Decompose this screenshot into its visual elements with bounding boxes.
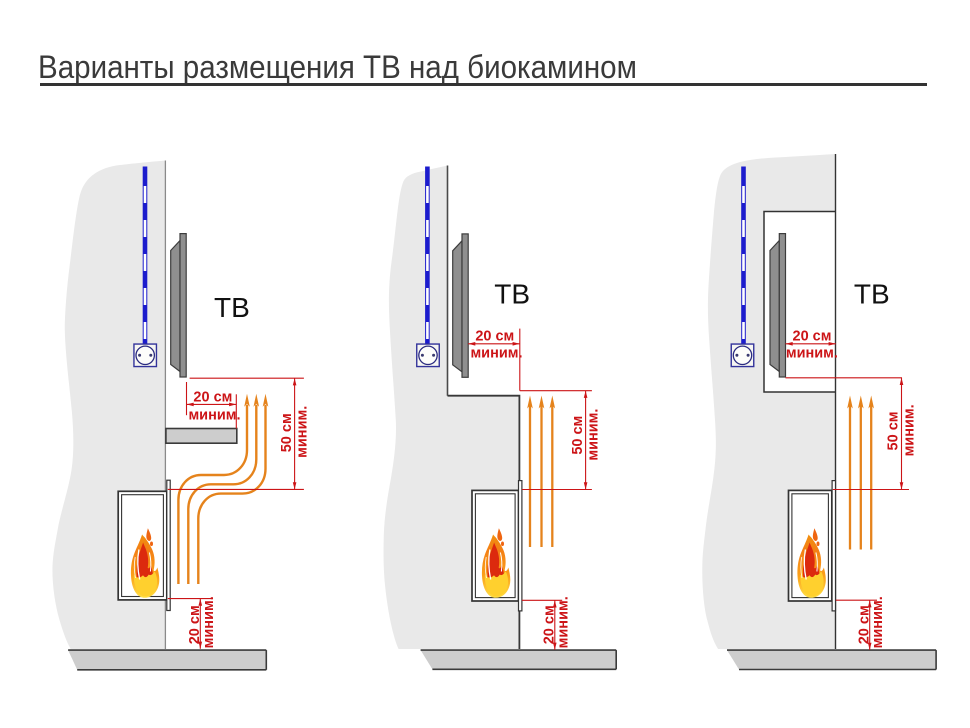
- svg-text:миним.: миним.: [586, 409, 602, 461]
- svg-text:миним.: миним.: [470, 346, 522, 362]
- svg-text:миним.: миним.: [786, 346, 838, 362]
- svg-text:20 см: 20 см: [193, 389, 232, 405]
- svg-text:50 см: 50 см: [570, 416, 586, 455]
- svg-text:миним.: миним.: [870, 596, 886, 648]
- svg-text:ТВ: ТВ: [854, 279, 890, 310]
- svg-text:миним.: миним.: [201, 596, 217, 648]
- svg-text:миним.: миним.: [902, 404, 918, 456]
- svg-text:миним.: миним.: [188, 407, 240, 423]
- svg-text:20 см: 20 см: [475, 329, 514, 345]
- svg-text:20 см: 20 см: [793, 328, 832, 344]
- svg-text:ТВ: ТВ: [214, 292, 250, 323]
- svg-text:миним.: миним.: [555, 596, 571, 648]
- svg-text:50 см: 50 см: [886, 412, 902, 451]
- svg-text:ТВ: ТВ: [494, 279, 530, 310]
- svg-text:миним.: миним.: [295, 406, 311, 458]
- svg-text:50 см: 50 см: [279, 413, 295, 452]
